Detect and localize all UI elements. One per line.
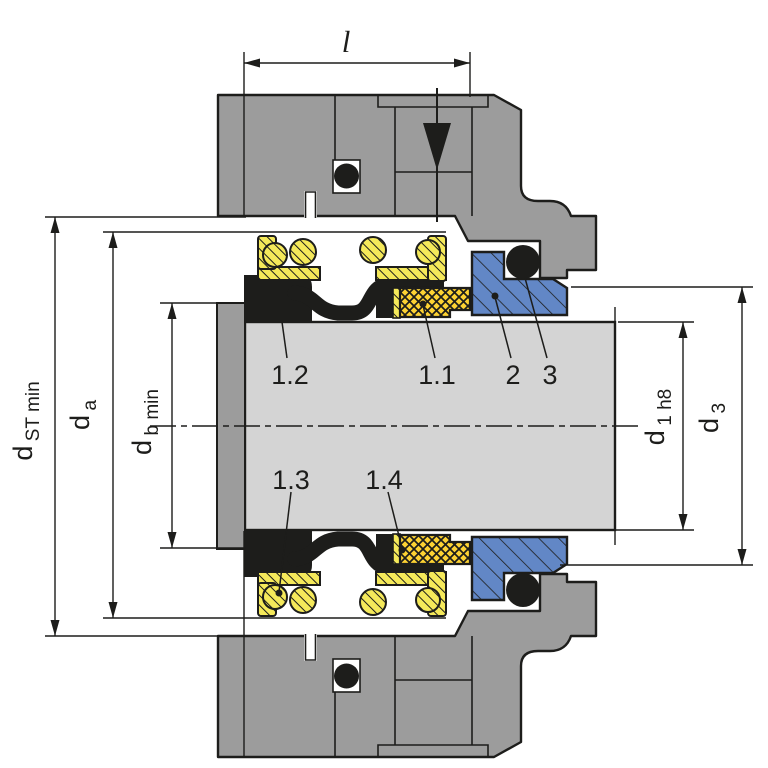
technical-drawing-canvas: l 1.2 1.1 2 3 1.3 1.4 d ST min d a d b m…: [0, 0, 768, 768]
seal-face-upper: [400, 288, 470, 317]
dim-label-db-min: d b min: [127, 389, 163, 455]
housing-slot-lower: [304, 633, 317, 661]
spring-coil: [263, 243, 287, 267]
gland-oring-pocket-lower: [333, 659, 360, 692]
seat-oring-upper: [506, 245, 540, 279]
gland-oring-lower: [334, 664, 359, 689]
spring-coil: [290, 239, 316, 265]
part-label-2: 2: [505, 360, 520, 390]
spring-coil: [416, 240, 440, 264]
gland-oring-pocket-upper: [333, 160, 360, 193]
spring-coil: [290, 587, 316, 613]
spring-lower: [258, 571, 446, 616]
gland-oring-upper: [334, 164, 359, 189]
part-label-1.4: 1.4: [365, 465, 403, 495]
part-label-1.3: 1.3: [272, 465, 310, 495]
mechanical-seal-diagram: l 1.2 1.1 2 3 1.3 1.4 d ST min d a d b m…: [0, 0, 768, 768]
spring-upper: [258, 236, 446, 281]
seal-face-lower: [400, 535, 470, 564]
part-label-1.1: 1.1: [418, 360, 456, 390]
seat-oring-lower: [506, 573, 540, 607]
spring-coil: [360, 589, 386, 615]
dim-label-dst-min: d ST min: [8, 381, 44, 460]
dim-label-d3: d 3: [694, 403, 730, 433]
spring-coil: [416, 588, 440, 612]
part-label-1.2: 1.2: [271, 360, 309, 390]
housing-slot-upper: [304, 191, 317, 219]
dim-label-l: l: [342, 24, 351, 59]
dim-label-d1-h8: d 1 h8: [640, 389, 676, 445]
part-label-3: 3: [542, 360, 557, 390]
spring-coil: [360, 237, 386, 263]
spring-coil: [263, 585, 287, 609]
dim-label-da: d a: [65, 400, 101, 430]
